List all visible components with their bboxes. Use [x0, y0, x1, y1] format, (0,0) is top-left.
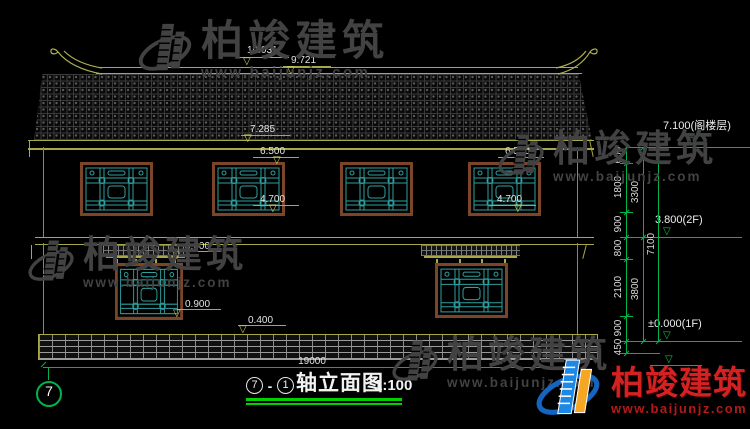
window-1f-right: [435, 263, 508, 318]
dim-3800: 3800: [631, 269, 641, 309]
window-2f-3: [340, 162, 413, 216]
down-triangle-icon: ▽: [269, 204, 277, 213]
drawing-title: 轴立面图: [296, 373, 384, 395]
level-floor2: 3.800(2F): [655, 215, 703, 226]
watermark-logo-icon: [390, 336, 440, 390]
title-axis-start-bubble: 7: [246, 377, 263, 394]
brand-logo: 柏竣建筑 www.baijunjz.com: [534, 356, 747, 424]
down-triangle-icon: ▽: [239, 325, 247, 334]
belt-end-right: [582, 245, 586, 259]
level-floor1: ±0.000(1F): [648, 319, 702, 330]
dim-2100: 2100: [614, 267, 624, 307]
watermark-logo-icon: [496, 130, 546, 184]
dim-7100: 7100: [647, 224, 657, 264]
watermark-logo-icon: [26, 236, 76, 290]
title-axis-end-bubble: 1: [277, 377, 294, 394]
eave-curl-left-icon: [24, 42, 104, 76]
window-2f-1: [80, 162, 153, 216]
watermark-right: 柏竣建筑 www.baijunjz.com: [496, 130, 717, 184]
watermark-top: 柏竣建筑 www.baijunjz.com: [136, 20, 389, 80]
cad-elevation-drawing: 10.031 ▽ 9.721 ▽ 7.285 ▽ 6.500 ▽ 4.700 ▽…: [0, 0, 750, 429]
awning-right: [421, 244, 520, 264]
down-triangle-icon: ▽: [244, 134, 252, 143]
watermark-left: 柏竣建筑 www.baijunjz.com: [26, 236, 247, 290]
axis-bubble-number: 7: [36, 386, 62, 397]
total-width-dim: 19000: [288, 357, 336, 367]
brand-logo-name: 柏竣建筑: [611, 366, 747, 399]
level-eave: 7.285: [250, 125, 275, 135]
down-triangle-icon: ▽: [663, 227, 671, 236]
watermark-brand: 柏竣建筑: [83, 236, 247, 273]
down-triangle-icon: ▽: [514, 204, 522, 213]
eave-end-left: [29, 141, 30, 157]
brand-logo-url: www.baijunjz.com: [611, 402, 747, 415]
down-triangle-icon: ▽: [663, 331, 671, 340]
down-triangle-icon: ▽: [273, 156, 281, 165]
down-triangle-icon: ▽: [173, 309, 181, 318]
watermark-logo-icon: [136, 20, 194, 80]
watermark-url: www.baijunjz.com: [201, 65, 389, 80]
watermark-url: www.baijunjz.com: [83, 276, 247, 290]
watermark-url: www.baijunjz.com: [553, 170, 717, 184]
brand-logo-icon: [534, 356, 606, 424]
eave-curl-right-icon: [556, 42, 602, 76]
watermark-brand: 柏竣建筑: [553, 130, 717, 167]
dim-800: 800: [614, 228, 624, 268]
title-axis-separator: -: [264, 381, 276, 392]
watermark-brand: 柏竣建筑: [201, 20, 389, 62]
title-underline-thick: [246, 398, 402, 401]
title-underline-thin: [246, 403, 402, 405]
